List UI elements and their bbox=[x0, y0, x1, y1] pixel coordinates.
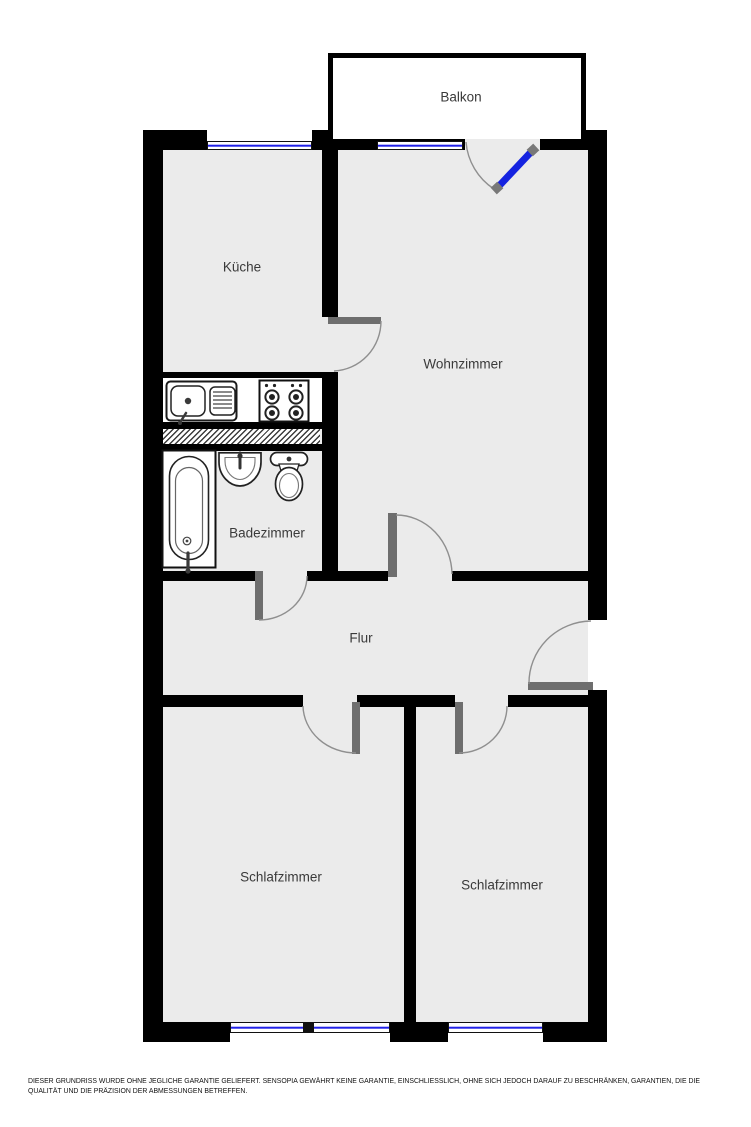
bathroom-door-swing-arc bbox=[259, 576, 307, 620]
washbasin bbox=[219, 453, 261, 486]
entry-door-swing-arc bbox=[529, 621, 591, 684]
kitchen-label: Küche bbox=[223, 260, 261, 275]
bedroom-left-label: Schlafzimmer bbox=[240, 870, 322, 885]
balcony-label: Balkon bbox=[440, 90, 481, 105]
disclaimer-text: DIESER GRUNDRISS WURDE OHNE JEGLICHE GAR… bbox=[28, 1077, 725, 1098]
kitchen-sink bbox=[167, 382, 237, 426]
kitchen-door-swing-arc bbox=[334, 321, 381, 371]
bedroom-right-label: Schlafzimmer bbox=[461, 878, 543, 893]
stove bbox=[260, 381, 309, 422]
bedroom-right-door-swing-arc bbox=[459, 706, 507, 753]
bathtub bbox=[163, 451, 216, 574]
balcony-door bbox=[499, 152, 531, 186]
hallway-label: Flur bbox=[349, 631, 372, 646]
plan-detail-layer bbox=[0, 0, 751, 1127]
balcony-door-swing-arc bbox=[466, 142, 494, 189]
livingroom-door-swing-arc bbox=[396, 515, 452, 574]
bedroom-left-door-swing-arc bbox=[303, 706, 356, 753]
toilet bbox=[271, 453, 308, 501]
bathroom-label: Badezimmer bbox=[229, 526, 305, 541]
floor-plan: Balkon Küche Wohnzimmer Badezimmer Flur … bbox=[0, 0, 751, 1127]
livingroom-label: Wohnzimmer bbox=[423, 357, 502, 372]
